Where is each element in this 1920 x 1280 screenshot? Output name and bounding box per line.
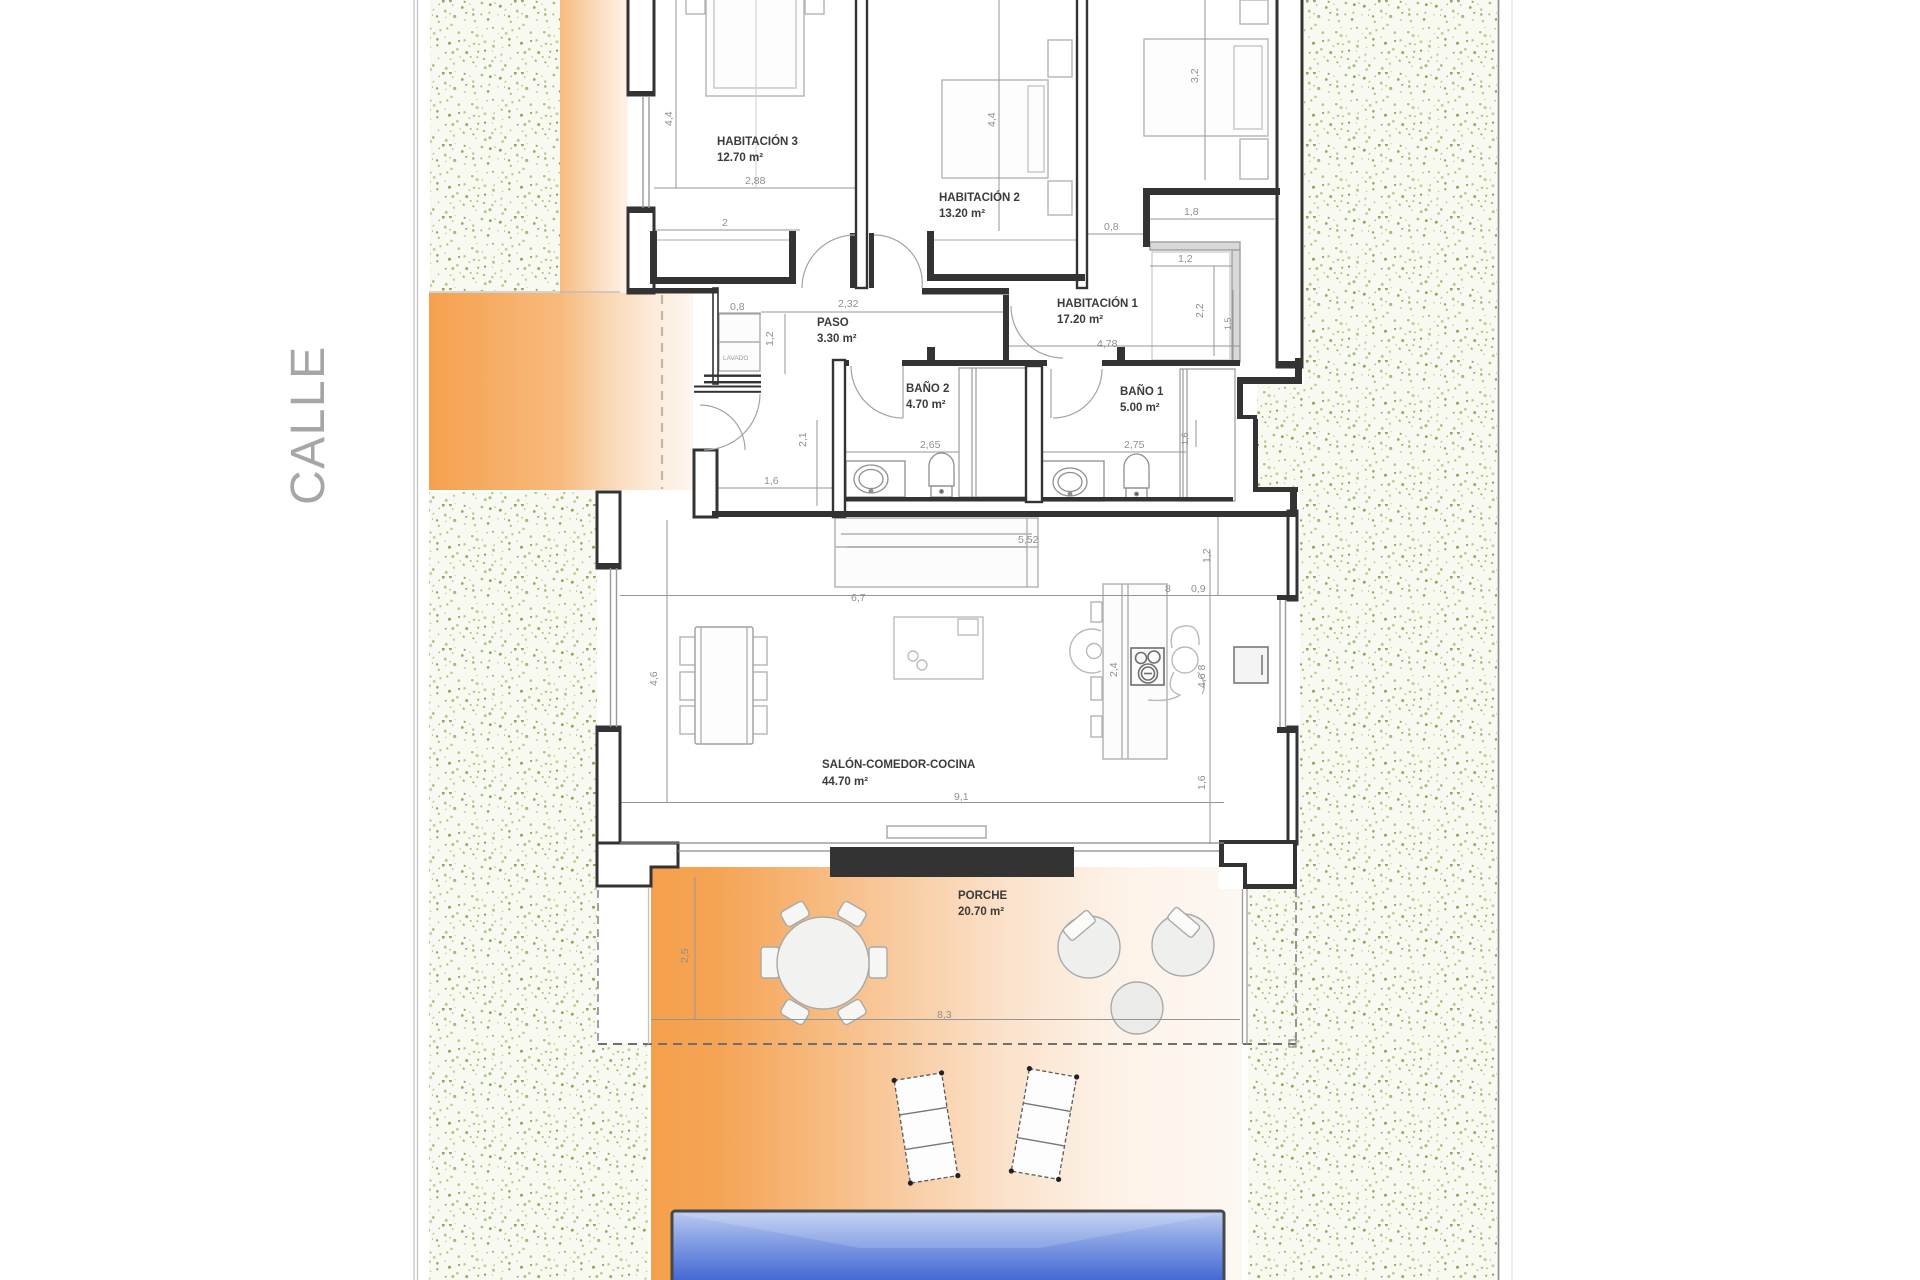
svg-text:HABITACIÓN 1: HABITACIÓN 1 — [1057, 297, 1139, 310]
svg-text:0,8: 0,8 — [730, 301, 745, 313]
svg-text:8,3: 8,3 — [937, 1009, 952, 1021]
svg-text:3,2: 3,2 — [1189, 68, 1201, 83]
svg-text:2,4: 2,4 — [1108, 662, 1120, 677]
svg-text:2,65: 2,65 — [920, 439, 941, 451]
svg-text:9,1: 9,1 — [954, 791, 969, 803]
svg-text:PASO: PASO — [817, 317, 849, 329]
svg-text:SALÓN-COMEDOR-COCINA: SALÓN-COMEDOR-COCINA — [822, 758, 975, 771]
svg-text:8: 8 — [1165, 583, 1171, 595]
svg-text:1,6: 1,6 — [764, 475, 779, 487]
svg-text:2: 2 — [722, 217, 728, 229]
svg-text:4.70 m²: 4.70 m² — [906, 399, 946, 411]
svg-text:2,5: 2,5 — [679, 948, 691, 963]
svg-text:BAÑO 1: BAÑO 1 — [1120, 385, 1164, 398]
svg-text:2,32: 2,32 — [838, 298, 859, 310]
svg-text:6,7: 6,7 — [851, 592, 866, 604]
svg-text:CALLE: CALLE — [282, 345, 335, 505]
svg-text:2,2: 2,2 — [1194, 303, 1206, 318]
svg-text:1,5: 1,5 — [1223, 317, 1233, 330]
svg-text:HABITACIÓN 2: HABITACIÓN 2 — [939, 191, 1020, 204]
svg-text:4,6: 4,6 — [648, 671, 660, 686]
svg-text:4,4: 4,4 — [663, 111, 675, 126]
svg-text:HABITACIÓN 3: HABITACIÓN 3 — [717, 135, 798, 148]
svg-text:0,8: 0,8 — [1104, 221, 1119, 233]
svg-text:4,4: 4,4 — [986, 112, 998, 127]
svg-text:13.20 m²: 13.20 m² — [939, 208, 985, 220]
svg-text:17.20 m²: 17.20 m² — [1057, 314, 1103, 326]
svg-text:20.70 m²: 20.70 m² — [958, 906, 1004, 918]
svg-text:2,75: 2,75 — [1124, 439, 1145, 451]
svg-text:5,52: 5,52 — [1018, 534, 1039, 546]
svg-text:LAVADO: LAVADO — [723, 355, 748, 362]
svg-text:2,88: 2,88 — [745, 175, 766, 187]
svg-text:1,6: 1,6 — [1196, 775, 1208, 790]
svg-text:BAÑO 2: BAÑO 2 — [906, 382, 949, 395]
svg-text:1,2: 1,2 — [1178, 253, 1193, 265]
svg-text:1,6: 1,6 — [1180, 432, 1190, 445]
svg-text:2,1: 2,1 — [797, 432, 809, 447]
svg-text:PORCHE: PORCHE — [958, 890, 1008, 902]
svg-text:44.70 m²: 44.70 m² — [822, 776, 868, 788]
svg-text:5.00 m²: 5.00 m² — [1120, 402, 1160, 414]
svg-text:0,9: 0,9 — [1191, 583, 1206, 595]
svg-text:1,8: 1,8 — [1184, 206, 1199, 218]
svg-text:12.70 m²: 12.70 m² — [717, 152, 763, 164]
svg-text:4,78: 4,78 — [1097, 338, 1118, 350]
svg-text:1,2: 1,2 — [1201, 548, 1213, 563]
svg-text:4,6 8: 4,6 8 — [1196, 664, 1208, 688]
svg-text:3.30 m²: 3.30 m² — [817, 333, 857, 345]
svg-text:1,2: 1,2 — [764, 331, 776, 346]
